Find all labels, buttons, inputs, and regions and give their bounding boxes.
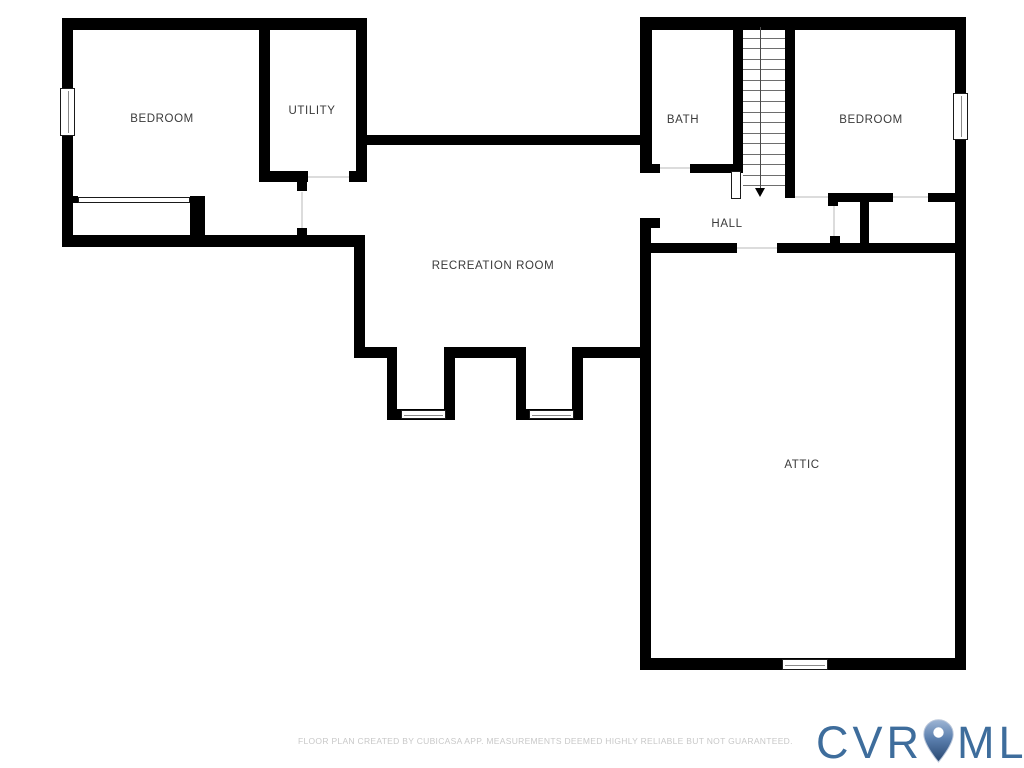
room-label-hall: HALL <box>711 218 742 230</box>
door-opening <box>660 167 690 169</box>
wall <box>785 17 795 198</box>
brand-logo: CVR MLS <box>816 719 1024 764</box>
floor-plan: BEDROOMUTILITYBATHBEDROOMHALLRECREATION … <box>0 0 1024 768</box>
door-opening <box>833 206 835 236</box>
door-opening <box>308 176 349 178</box>
room-label-recreation-room: RECREATION ROOM <box>432 260 555 272</box>
stair-direction-line <box>760 27 761 188</box>
logo-text-mls: MLS <box>957 721 1024 764</box>
window-pane <box>532 415 571 416</box>
wall <box>190 196 205 235</box>
window <box>782 659 828 670</box>
window-pane <box>961 96 962 137</box>
room-label-utility: UTILITY <box>288 105 335 117</box>
window-pane <box>404 415 443 416</box>
wall <box>928 193 956 202</box>
location-pin-icon <box>923 719 954 763</box>
window-pane <box>68 91 69 133</box>
stair-tread <box>743 59 785 60</box>
stair-tread <box>743 175 785 176</box>
door-opening <box>893 196 928 198</box>
stair-handrail <box>731 171 741 199</box>
room-label-bedroom-left: BEDROOM <box>130 113 194 125</box>
wall <box>777 243 956 253</box>
stair-tread <box>743 48 785 49</box>
wall <box>640 218 651 670</box>
wall <box>62 196 78 203</box>
wall <box>259 30 270 182</box>
stair-tread <box>743 112 785 113</box>
wall <box>297 182 307 191</box>
closet-sliding-door <box>78 197 190 203</box>
stair-tread <box>743 143 785 144</box>
window <box>953 93 968 140</box>
wall <box>828 193 838 206</box>
window <box>60 88 75 136</box>
wall <box>640 17 966 30</box>
wall <box>640 17 652 173</box>
wall <box>259 171 308 182</box>
wall <box>356 18 367 182</box>
wall <box>357 135 643 145</box>
disclaimer-text: FLOOR PLAN CREATED BY CUBICASA APP. MEAS… <box>298 736 748 746</box>
wall <box>733 17 743 171</box>
stair-tread <box>743 69 785 70</box>
room-label-attic: ATTIC <box>784 459 819 471</box>
stair-tread <box>743 122 785 123</box>
wall <box>354 235 365 358</box>
window <box>401 410 446 419</box>
wall <box>640 164 660 173</box>
wall <box>651 218 660 228</box>
wall <box>651 243 737 253</box>
door-opening <box>301 192 303 228</box>
door-opening <box>737 247 777 249</box>
wall <box>297 228 307 235</box>
wall <box>62 18 367 30</box>
window-pane <box>785 665 825 666</box>
stair-tread <box>743 101 785 102</box>
stair-tread <box>743 38 785 39</box>
stair-tread <box>743 133 785 134</box>
room-label-bedroom-right: BEDROOM <box>839 114 903 126</box>
stair-tread <box>743 80 785 81</box>
logo-text-cvr: CVR <box>816 721 923 764</box>
stair-down-arrow-icon <box>755 188 765 197</box>
stair-tread <box>743 164 785 165</box>
wall <box>444 347 526 358</box>
room-label-bath: BATH <box>667 114 699 126</box>
wall <box>62 235 365 247</box>
stair-tread <box>743 185 785 186</box>
stair-tread <box>743 90 785 91</box>
door-opening <box>795 196 828 198</box>
stair-tread <box>743 154 785 155</box>
window <box>529 410 574 419</box>
wall <box>860 200 869 247</box>
